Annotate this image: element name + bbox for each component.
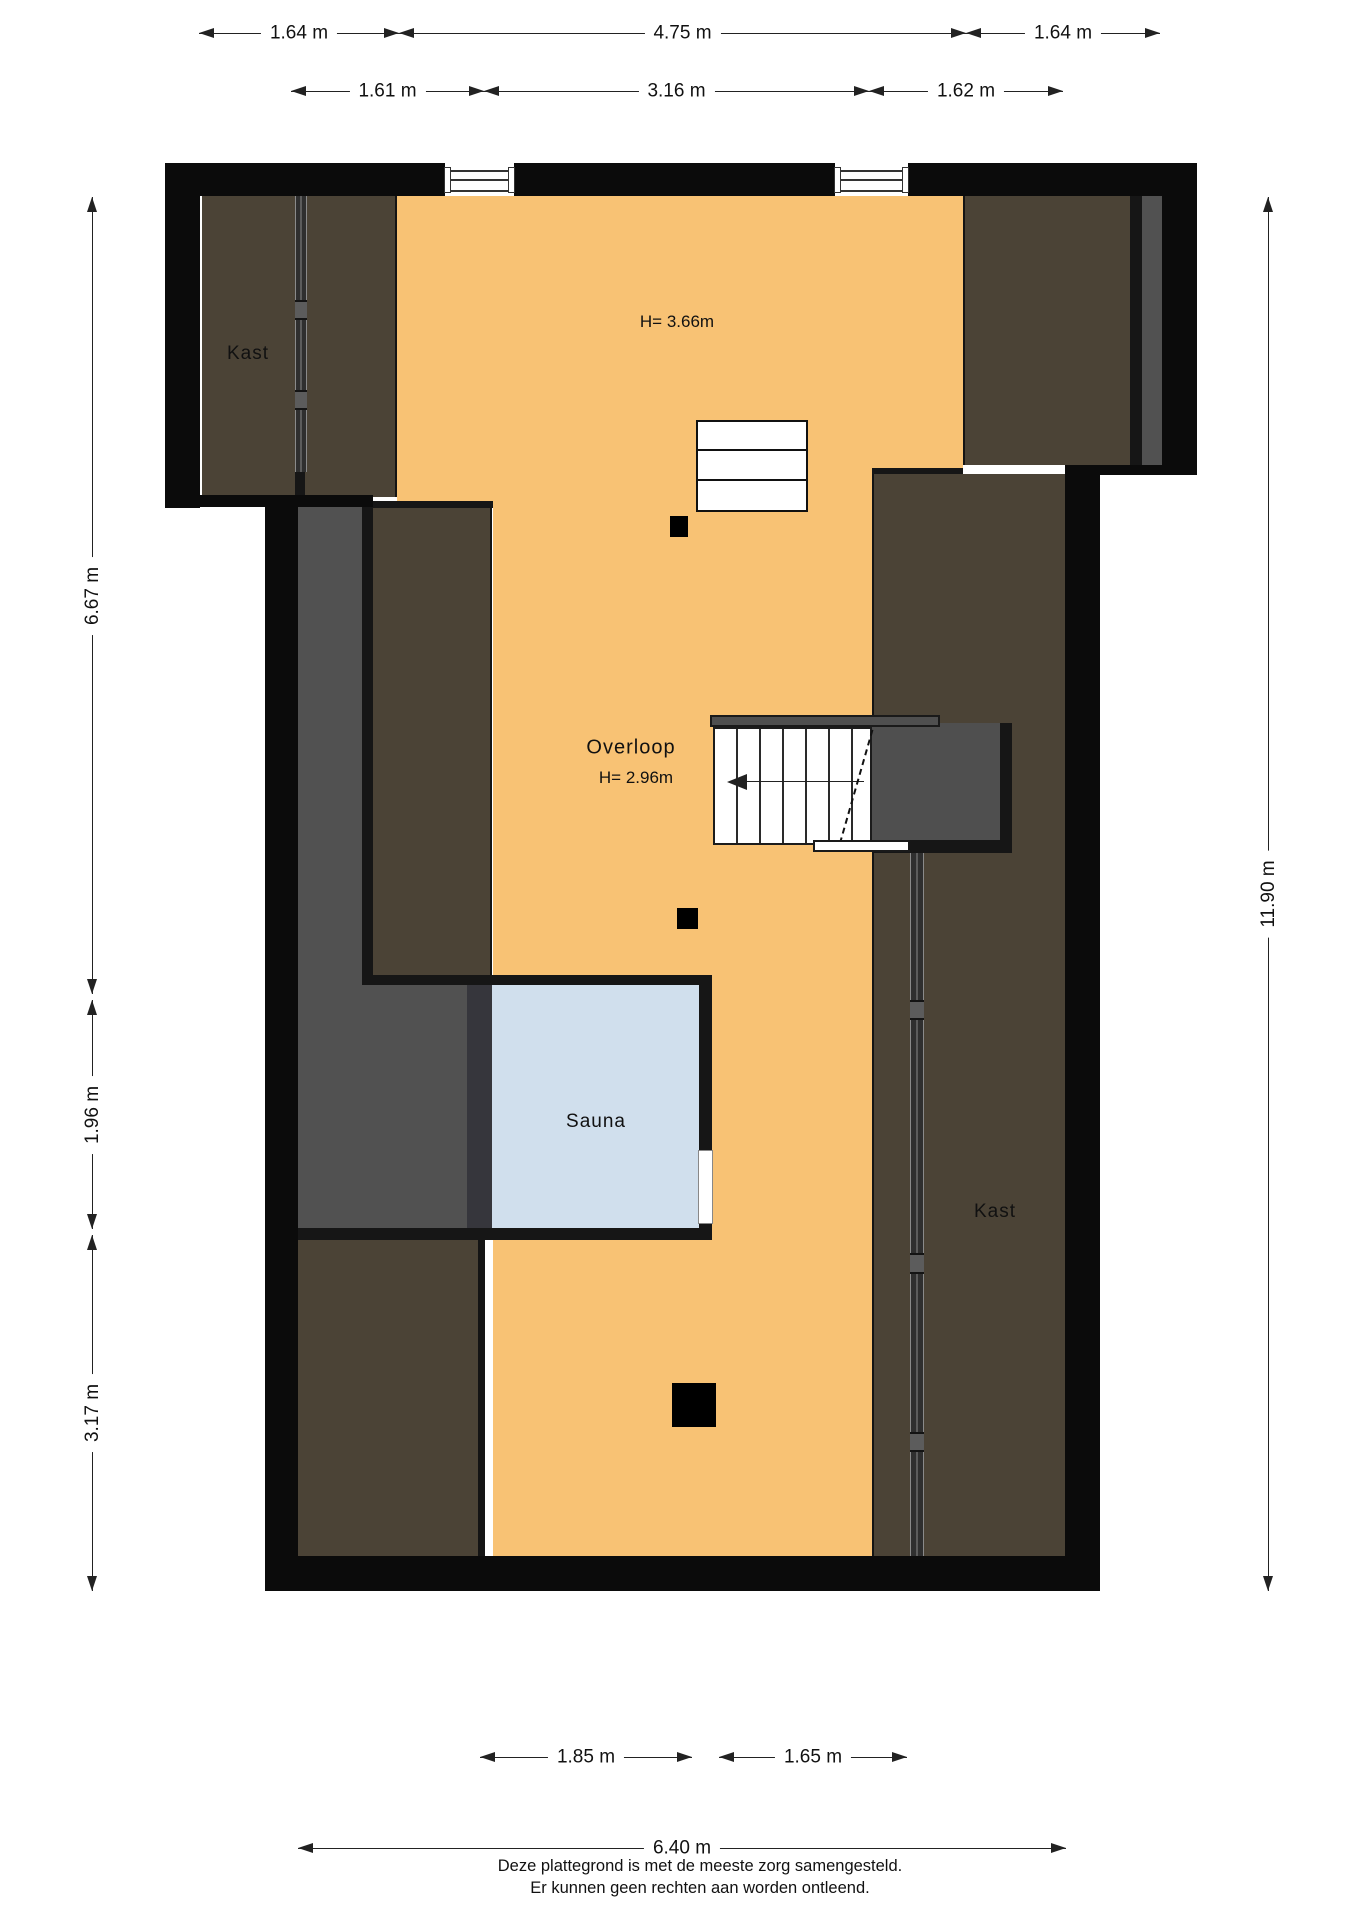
sauna-wall-bottom xyxy=(298,1228,712,1240)
landing-wall-right xyxy=(1000,723,1012,853)
sliding-door-track-left xyxy=(295,196,307,472)
sliding-door-track-right xyxy=(910,853,924,1556)
dim-left-3: 3.17 m xyxy=(92,1235,93,1591)
dim-left-1: 6.67 m xyxy=(92,197,93,994)
dim-top-outer-1: 1.64 m xyxy=(199,33,399,34)
kast-right-zone xyxy=(872,474,1065,1556)
sauna-floor xyxy=(492,985,699,1228)
wall-right-lower xyxy=(1065,465,1100,1591)
dim-bottom-inner-1: 1.85 m xyxy=(480,1757,692,1758)
dim-top-inner-2: 3.16 m xyxy=(484,91,869,92)
room-label-overloop: Overloop xyxy=(586,737,675,760)
height-note-overloop: H= 2.96m xyxy=(599,768,673,788)
track-roller xyxy=(295,300,307,320)
room-label-kast-right: Kast xyxy=(974,1201,1016,1223)
cabinet-object xyxy=(696,420,808,512)
window-cap xyxy=(834,167,841,193)
roof-zone-top-right xyxy=(963,196,1130,465)
stairs-direction-arrow xyxy=(727,774,747,790)
track-roller xyxy=(910,1253,924,1274)
window-cap xyxy=(902,167,909,193)
inner-step-line-left xyxy=(373,501,493,508)
track-roller xyxy=(295,390,307,410)
gray-shaft-top-right xyxy=(1142,196,1162,465)
chimney-block-small xyxy=(670,516,688,537)
track-end-cap xyxy=(295,472,305,497)
wall-left-upper xyxy=(165,163,200,508)
gray-strip-left xyxy=(298,507,362,985)
height-note-open-space: H= 3.66m xyxy=(640,312,714,332)
dim-top-inner-1: 1.61 m xyxy=(291,91,484,92)
dim-top-outer-3: 1.64 m xyxy=(966,33,1160,34)
disclaimer-line-2: Er kunnen geen rechten aan worden ontlee… xyxy=(498,1877,902,1899)
cabinet-shelf-line xyxy=(697,449,807,451)
roof-zone-bottom-left xyxy=(298,1240,485,1556)
track-center-line xyxy=(301,196,302,472)
stairs-handrail xyxy=(710,715,940,727)
stairs-cut-line xyxy=(839,730,873,844)
track-roller xyxy=(910,1432,924,1452)
dim-top-outer-2: 4.75 m xyxy=(399,33,966,34)
shaft-divider-line xyxy=(1130,196,1142,465)
dim-left-2: 1.96 m xyxy=(92,1000,93,1229)
gray-block-left xyxy=(298,985,467,1228)
overloop-floor-top xyxy=(397,196,963,474)
sauna-wall-top xyxy=(362,975,712,985)
window-cap xyxy=(508,167,515,193)
inner-step-line-right xyxy=(872,468,963,474)
window-glass-line xyxy=(837,179,906,181)
dim-right: 11.90 m xyxy=(1268,197,1269,1591)
wall-top xyxy=(165,163,1197,196)
dim-bottom-inner-2: 1.65 m xyxy=(719,1757,907,1758)
window-cap xyxy=(444,167,451,193)
cabinet-shelf-line xyxy=(697,479,807,481)
window-frame xyxy=(445,170,514,192)
chimney-block-small xyxy=(677,908,698,929)
inner-wall-left-strip xyxy=(362,507,373,985)
room-label-kast-top-left: Kast xyxy=(227,343,269,365)
sauna-door xyxy=(698,1150,713,1224)
dim-bottom-outer: 6.40 m xyxy=(298,1848,1066,1849)
sauna-wall-left xyxy=(467,985,492,1228)
floorplan-canvas: Kast H= 3.66m Overloop H= 2.96m Sauna Ka… xyxy=(0,0,1358,1920)
stairs-direction-line xyxy=(743,781,864,782)
disclaimer: Deze plattegrond is met de meeste zorg s… xyxy=(498,1855,902,1900)
disclaimer-line-1: Deze plattegrond is met de meeste zorg s… xyxy=(498,1855,902,1877)
stairs-bottom-step xyxy=(813,840,910,852)
wall-left-lower xyxy=(265,495,298,1591)
wall-right-upper xyxy=(1162,163,1197,475)
window-glass-line xyxy=(447,179,512,181)
dim-top-inner-3: 1.62 m xyxy=(869,91,1063,92)
kast-top-left-zone-b xyxy=(305,196,397,497)
staircase xyxy=(713,727,872,845)
window-frame xyxy=(835,170,908,192)
room-label-sauna: Sauna xyxy=(566,1111,626,1133)
stair-landing xyxy=(872,723,1000,840)
window xyxy=(445,163,514,196)
window xyxy=(835,163,908,196)
track-roller xyxy=(910,1000,924,1020)
chimney-block-large xyxy=(672,1383,716,1427)
wall-bottom xyxy=(265,1556,1100,1591)
roof-strip-left xyxy=(373,507,492,975)
